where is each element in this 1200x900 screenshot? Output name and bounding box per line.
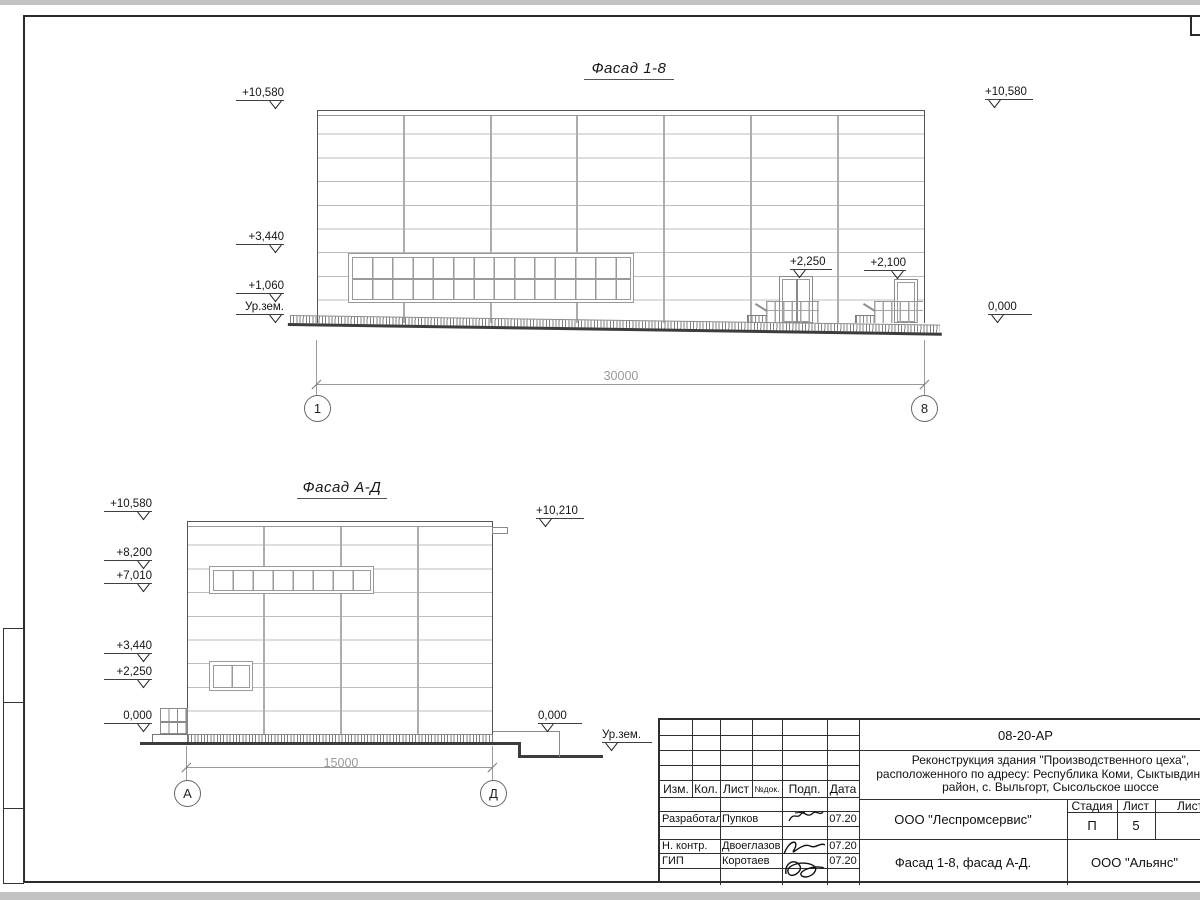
extension-line: [924, 340, 925, 396]
column-line: [340, 527, 342, 734]
axis-bubble-8: 8: [911, 395, 938, 422]
dimension-line: [317, 384, 925, 385]
margin-box-2: [3, 702, 24, 809]
elevation-mark: +1,060: [236, 281, 284, 294]
window-mullion: [353, 278, 630, 280]
window-glazing: [213, 665, 250, 688]
extension-line: [492, 746, 493, 782]
role-gip: ГИП: [662, 853, 720, 868]
level-arrow-icon: [137, 723, 149, 731]
date-developer: 07.20: [827, 811, 859, 826]
margin-box-3: [3, 808, 24, 884]
date-gip: 07.20: [827, 853, 859, 868]
level-arrow-icon: [988, 99, 1000, 107]
column-line: [750, 116, 752, 323]
level-arrow-icon: [793, 269, 805, 277]
drawing-sheet: Фасад 1-8 +10,580 +3,440 +1,060 Ур.зем.: [0, 0, 1200, 900]
name-gip: Коротаев: [722, 853, 782, 868]
column-line: [837, 116, 839, 323]
elevation-mark: +10,580: [236, 88, 284, 101]
title-block: Изм. Кол. Лист №док. Подп. Дата Разработ…: [658, 718, 1200, 883]
signature-ncontrol-gip: [780, 836, 828, 882]
stage-label: Стадия: [1067, 799, 1117, 812]
elevation-mark: +2,250: [104, 667, 152, 680]
elevation-mark: 0,000: [104, 711, 152, 724]
level-arrow-icon: [539, 518, 551, 526]
elevation-mark: +7,010: [104, 571, 152, 584]
roof-outlet-pipe: [492, 527, 508, 534]
column-line: [263, 527, 265, 734]
level-arrow-icon: [137, 560, 149, 568]
elevation-mark: +10,210: [536, 506, 584, 519]
customer-organization: ООО "Альянс": [1067, 839, 1200, 885]
margin-box-1: [3, 628, 24, 703]
screen-edge-bottom: [0, 892, 1200, 900]
level-arrow-icon: [269, 244, 281, 252]
sheets-label: Листов: [1155, 799, 1200, 812]
axis-bubble-a: А: [174, 780, 201, 807]
platform-edge: [559, 731, 560, 757]
ground-line-left: [140, 742, 520, 745]
level-arrow-icon: [137, 583, 149, 591]
sheet-title: Фасад 1-8, фасад А-Д.: [859, 839, 1067, 885]
dimension-value: 30000: [591, 369, 651, 383]
ground-line-right: [518, 755, 603, 758]
elevation-mark: +3,440: [236, 232, 284, 245]
steps-2: [855, 315, 875, 323]
signature-developer: [785, 808, 825, 826]
project-description: Реконструкция здания "Производственного …: [859, 750, 1200, 799]
porch-structure: [160, 708, 188, 734]
level-arrow-icon: [269, 314, 281, 322]
ground-level-mark: Ур.зем.: [236, 302, 284, 315]
small-window: [209, 661, 253, 691]
ribbon-window: [348, 253, 634, 303]
elevation-mark: +2,250: [790, 257, 832, 270]
sheet-label: Лист: [1117, 799, 1155, 812]
porch-railing-1: [766, 301, 819, 323]
window-glazing: [352, 257, 631, 300]
axis-bubble-1: 1: [304, 395, 331, 422]
porch-railing-2: [874, 301, 923, 323]
platform-edge: [493, 731, 560, 732]
col-header-podp: Подп.: [782, 780, 827, 797]
dimension-value: 15000: [311, 756, 371, 770]
elevation-mark: 0,000: [538, 711, 582, 724]
col-header-list: Лист: [720, 780, 752, 797]
axis-bubble-d: Д: [480, 780, 507, 807]
extension-line: [316, 340, 317, 396]
elevation-mark: +8,200: [104, 548, 152, 561]
window-glazing: [213, 570, 371, 591]
facade-1-8-title: Фасад 1-8: [584, 60, 674, 80]
elevation-mark: +3,440: [104, 641, 152, 654]
role-developer: Разработал: [662, 811, 720, 826]
col-header-izm: Изм.: [660, 780, 692, 797]
level-arrow-icon: [891, 270, 903, 278]
level-arrow-icon: [137, 679, 149, 687]
level-arrow-icon: [137, 511, 149, 519]
col-header-doc: №док.: [752, 780, 782, 797]
extension-line: [186, 746, 187, 782]
column-line: [417, 527, 419, 734]
sheet-number: 5: [1117, 812, 1155, 839]
elevation-mark: 0,000: [988, 302, 1032, 315]
elevation-mark: +2,100: [864, 258, 906, 271]
column-line: [663, 116, 665, 323]
design-organization: ООО "Леспромсервис": [859, 799, 1067, 839]
elevation-mark: +10,580: [985, 87, 1033, 100]
level-arrow-icon: [137, 653, 149, 661]
ribbon-window: [209, 566, 374, 594]
level-arrow-icon: [269, 293, 281, 301]
name-developer: Пупков: [722, 811, 782, 826]
level-arrow-icon: [541, 723, 553, 731]
stage-value: П: [1067, 812, 1117, 839]
name-ncontrol: Двоеглазов: [722, 839, 782, 853]
document-number: 08-20-АР: [859, 720, 1200, 750]
facade-ad-elevation: [187, 521, 493, 734]
elevation-mark: +10,580: [104, 499, 152, 512]
facade-1-8-elevation: [317, 110, 925, 323]
col-header-data: Дата: [827, 780, 859, 797]
parapet-line: [318, 115, 924, 116]
col-header-kol: Кол.: [692, 780, 720, 797]
role-ncontrol: Н. контр.: [662, 839, 720, 853]
level-arrow-icon: [269, 100, 281, 108]
level-arrow-icon: [605, 742, 617, 750]
ground-level-mark: Ур.зем.: [602, 730, 652, 743]
facade-ad-title: Фасад А-Д: [297, 479, 387, 499]
screen-edge-top: [0, 0, 1200, 5]
date-ncontrol: 07.20: [827, 839, 859, 853]
level-arrow-icon: [991, 314, 1003, 322]
corner-stamp-box: [1190, 15, 1200, 36]
